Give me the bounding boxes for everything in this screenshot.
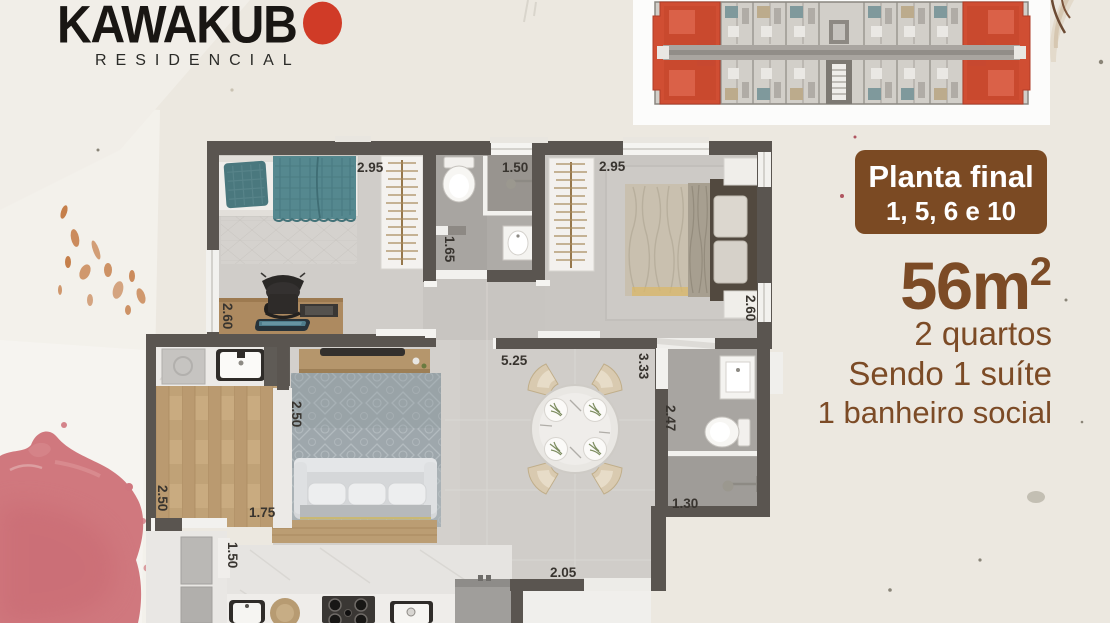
svg-text:2.95: 2.95	[599, 159, 626, 174]
svg-text:1.75: 1.75	[249, 505, 276, 520]
svg-text:1.50: 1.50	[502, 160, 528, 175]
svg-text:2.60: 2.60	[220, 303, 235, 329]
svg-text:3.33: 3.33	[636, 353, 651, 380]
svg-text:2.05: 2.05	[550, 565, 577, 580]
svg-text:2.50: 2.50	[289, 401, 304, 427]
svg-text:2.47: 2.47	[663, 405, 678, 431]
svg-text:2.95: 2.95	[357, 160, 384, 175]
svg-text:1.30: 1.30	[672, 496, 698, 511]
svg-text:2.60: 2.60	[743, 295, 758, 321]
svg-text:2.50: 2.50	[155, 485, 170, 511]
svg-text:1.50: 1.50	[225, 542, 240, 568]
svg-text:1.65: 1.65	[442, 236, 457, 263]
svg-text:5.25: 5.25	[501, 353, 528, 368]
